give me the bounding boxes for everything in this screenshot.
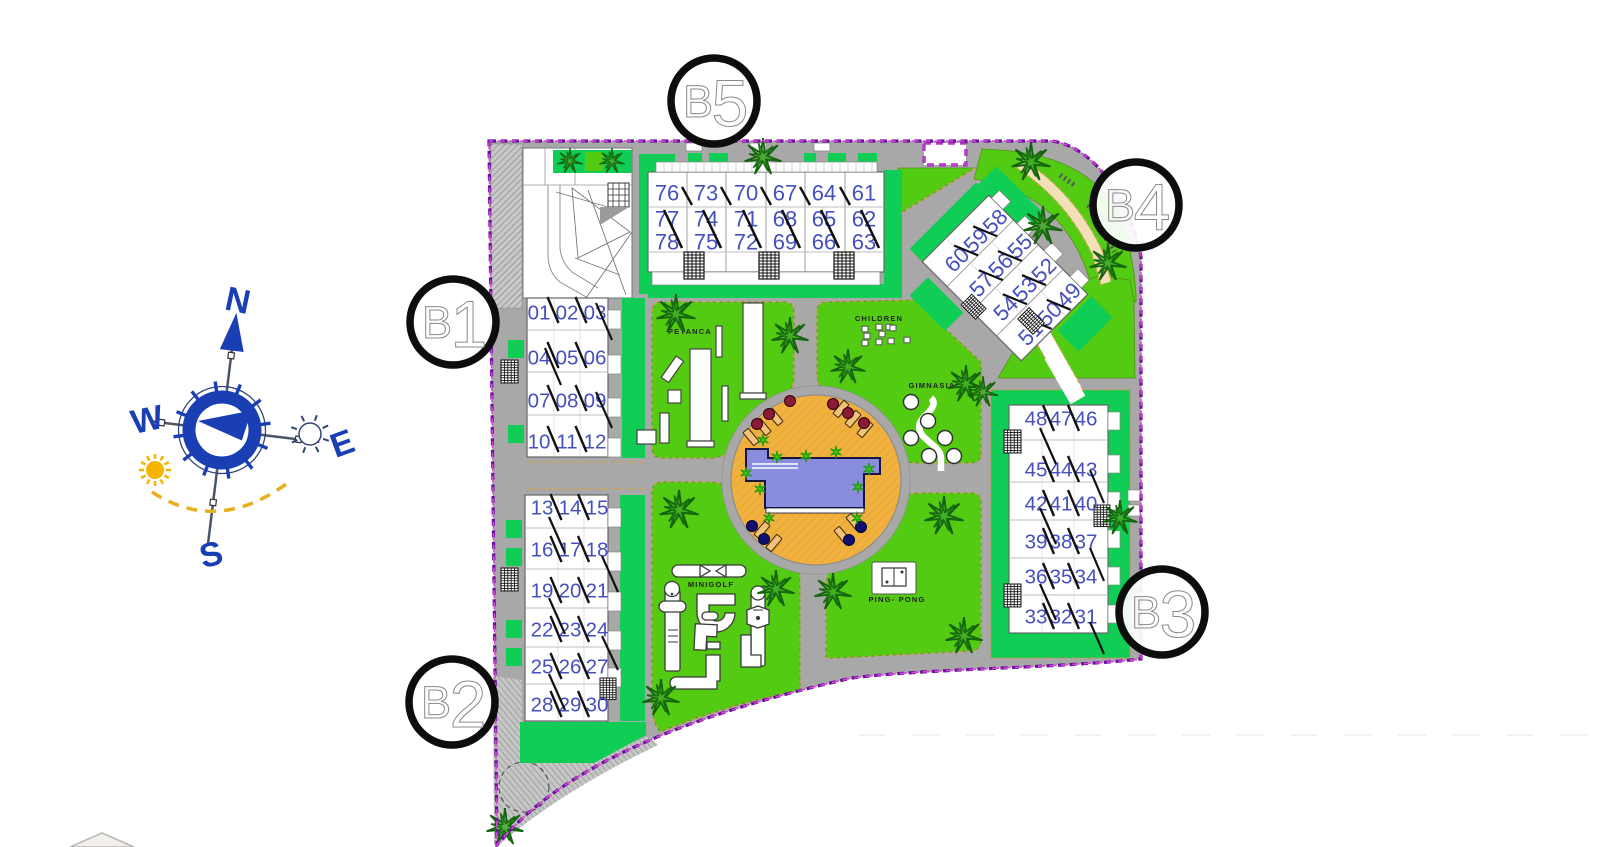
svg-text:39: 39 (1025, 531, 1048, 554)
svg-text:22: 22 (531, 619, 554, 642)
svg-text:3: 3 (1160, 577, 1197, 651)
svg-text:5: 5 (712, 66, 749, 140)
svg-text:12: 12 (584, 431, 607, 454)
svg-text:B: B (422, 297, 452, 348)
svg-text:14: 14 (559, 497, 582, 520)
svg-text:67: 67 (773, 181, 797, 206)
svg-text:33: 33 (1025, 606, 1048, 629)
svg-text:05: 05 (556, 347, 579, 370)
svg-text:20: 20 (559, 580, 582, 603)
svg-text:B: B (683, 76, 713, 127)
svg-text:64: 64 (812, 181, 836, 206)
svg-text:30: 30 (586, 694, 609, 717)
svg-text:02: 02 (556, 302, 579, 325)
svg-text:B: B (1105, 180, 1135, 231)
svg-text:18: 18 (586, 539, 609, 562)
svg-text:07: 07 (528, 390, 551, 413)
svg-text:36: 36 (1025, 566, 1048, 589)
svg-text:S: S (196, 534, 227, 576)
svg-text:W: W (128, 398, 168, 442)
svg-text:MINIGOLF: MINIGOLF (688, 580, 734, 589)
svg-text:11: 11 (556, 431, 577, 454)
svg-text:70: 70 (734, 181, 758, 206)
svg-text:48: 48 (1025, 408, 1048, 431)
svg-text:N: N (222, 280, 254, 322)
svg-text:61: 61 (852, 181, 876, 206)
svg-text:PETANCA: PETANCA (668, 327, 712, 336)
svg-text:B: B (421, 677, 451, 728)
svg-text:B: B (1131, 587, 1161, 638)
svg-text:76: 76 (655, 181, 679, 206)
svg-text:73: 73 (694, 181, 718, 206)
svg-text:21: 21 (586, 580, 609, 603)
svg-text:42: 42 (1025, 493, 1048, 516)
svg-text:23: 23 (559, 619, 582, 642)
svg-text:08: 08 (556, 390, 579, 413)
svg-text:28: 28 (531, 694, 554, 717)
svg-text:E: E (325, 422, 359, 465)
svg-text:PING- PONG: PING- PONG (868, 595, 925, 604)
svg-text:2: 2 (450, 667, 487, 741)
svg-text:CHILDREN: CHILDREN (855, 314, 903, 323)
svg-text:15: 15 (586, 497, 609, 520)
svg-text:01: 01 (528, 302, 551, 325)
svg-text:16: 16 (531, 539, 554, 562)
svg-text:45: 45 (1025, 459, 1048, 482)
svg-text:27: 27 (586, 656, 609, 679)
svg-text:1: 1 (451, 287, 488, 361)
svg-text:24: 24 (586, 619, 609, 642)
svg-text:4: 4 (1134, 170, 1171, 244)
svg-text:06: 06 (584, 347, 607, 370)
svg-text:17: 17 (559, 539, 582, 562)
svg-text:26: 26 (559, 656, 582, 679)
svg-text:10: 10 (528, 431, 551, 454)
svg-text:13: 13 (531, 497, 554, 520)
